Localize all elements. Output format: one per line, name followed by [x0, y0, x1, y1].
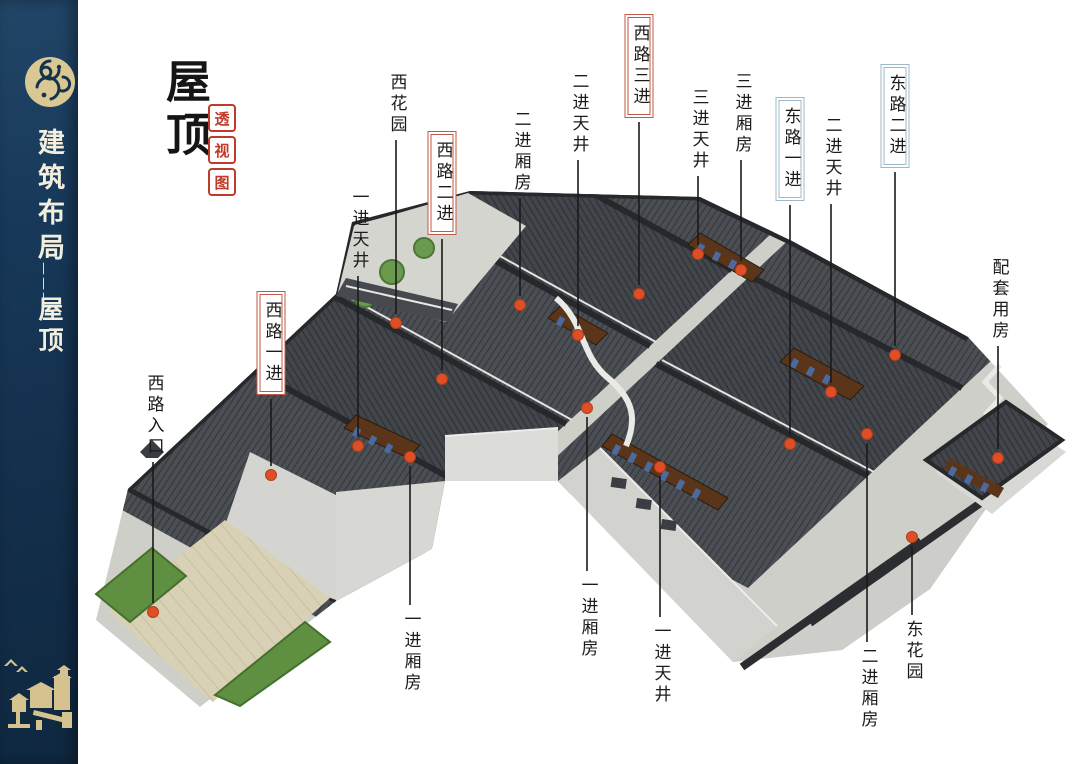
labels-layer: 西花园一进天井西路一进西路入口西路二进二进厢房二进天井西路三进三进天井三进厢房东… — [0, 0, 1080, 764]
roof-part-label-13: 配套用房 — [990, 258, 1007, 342]
roof-part-label-10: 东路一进 — [776, 97, 805, 201]
roof-part-label-4: 西路二进 — [428, 131, 457, 235]
roof-part-label-9: 三进厢房 — [733, 72, 750, 156]
roof-part-label-1: 一进天井 — [350, 188, 367, 272]
roof-part-label-2: 西路一进 — [257, 291, 286, 395]
roof-part-label-5: 二进厢房 — [512, 110, 529, 194]
roof-part-label-3: 西路入口 — [145, 374, 162, 458]
roof-part-label-17: 二进厢房 — [859, 647, 876, 731]
roof-part-label-18: 东花园 — [904, 620, 921, 683]
roof-part-label-8: 三进天井 — [690, 88, 707, 172]
roof-part-label-7: 西路三进 — [625, 14, 654, 118]
page: { "sidebar": { "title_vertical": "建筑布局",… — [0, 0, 1080, 764]
roof-part-label-11: 二进天井 — [823, 116, 840, 200]
roof-part-label-6: 二进天井 — [570, 72, 587, 156]
roof-part-label-16: 一进天井 — [652, 622, 669, 706]
roof-part-label-14: 一进厢房 — [402, 610, 419, 694]
roof-part-label-0: 西花园 — [388, 73, 405, 136]
roof-part-label-12: 东路二进 — [881, 64, 910, 168]
roof-part-label-15: 一进厢房 — [579, 576, 596, 660]
